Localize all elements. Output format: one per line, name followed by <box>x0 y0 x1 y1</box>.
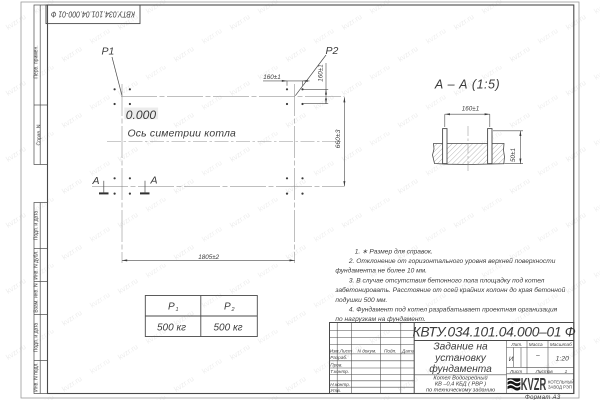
svg-text:1805±2: 1805±2 <box>198 254 219 261</box>
svg-text:P: P <box>168 302 175 313</box>
svg-text:1. ∗ Размер для справок.: 1. ∗ Размер для справок. <box>355 247 433 255</box>
svg-text:P1: P1 <box>102 46 115 58</box>
svg-text:фундамента не более 10 мм.: фундамента не более 10 мм. <box>335 267 427 275</box>
svg-text:4. Фундамент под котел разраб: 4. Фундамент под котел разрабатывает про… <box>349 306 558 314</box>
svg-text:по техническому заданию: по техническому заданию <box>426 387 496 393</box>
svg-text:И: И <box>509 356 514 363</box>
svg-text:Лист: Лист <box>509 369 522 374</box>
svg-text:Т.контр.: Т.контр. <box>330 369 349 374</box>
svg-text:Пров.: Пров. <box>330 362 342 367</box>
svg-text:160±1: 160±1 <box>263 74 280 81</box>
svg-text:Дата: Дата <box>401 348 415 353</box>
svg-text:Задание на: Задание на <box>433 341 488 352</box>
svg-text:фундамента: фундамента <box>429 363 492 375</box>
svg-text:2: 2 <box>231 307 235 313</box>
svg-text:50±1: 50±1 <box>510 148 517 162</box>
svg-text:160±1: 160±1 <box>317 64 324 81</box>
svg-text:Справ. N: Справ. N <box>37 124 43 145</box>
svg-text:Инв. N подл.: Инв. N подл. <box>34 362 40 391</box>
svg-text:КВТУ.034.101.04.000–01 Ф: КВТУ.034.101.04.000–01 Ф <box>413 324 576 339</box>
svg-text:Инв. N дубл.: Инв. N дубл. <box>34 250 40 279</box>
svg-text:Утв.: Утв. <box>330 388 341 393</box>
svg-text:Взам. инв. N: Взам. инв. N <box>34 283 40 313</box>
svg-text:забетонировать. Расстояние от: забетонировать. Расстояние от осей крайн… <box>334 286 565 294</box>
svg-text:подушки 500 мм.: подушки 500 мм. <box>335 296 387 304</box>
svg-text:Масса: Масса <box>529 342 543 347</box>
svg-text:A: A <box>92 175 100 187</box>
svg-text:Формат А3: Формат А3 <box>525 395 561 400</box>
svg-text:A: A <box>150 175 158 187</box>
svg-text:0.000: 0.000 <box>126 108 157 122</box>
svg-text:Перв. примен.: Перв. примен. <box>34 45 40 78</box>
svg-text:Подп. и дата: Подп. и дата <box>34 323 40 353</box>
svg-text:KVZR: KVZR <box>521 374 547 394</box>
svg-text:Листов: Листов <box>535 369 554 374</box>
svg-text:Изм.Лист: Изм.Лист <box>330 348 352 353</box>
svg-text:160±1: 160±1 <box>462 106 479 113</box>
svg-text:КОТЕЛЬНЫЙ: КОТЕЛЬНЫЙ <box>548 379 574 384</box>
svg-text:А – А (1:5): А – А (1:5) <box>434 78 500 92</box>
svg-text:Масштаб: Масштаб <box>550 342 572 347</box>
svg-text:N докум.: N докум. <box>358 348 377 353</box>
svg-text:Н.контр.: Н.контр. <box>330 382 350 387</box>
svg-text:1: 1 <box>176 307 179 313</box>
svg-text:ЗАВОД РЭП: ЗАВОД РЭП <box>548 385 572 390</box>
svg-text:Подп.: Подп. <box>384 348 396 353</box>
svg-text:–: – <box>535 353 540 360</box>
svg-text:установку: установку <box>434 353 487 364</box>
svg-text:2. Отклонение от горизонтальн: 2. Отклонение от горизонтального уровня … <box>348 257 556 265</box>
svg-text:Разраб.: Разраб. <box>330 355 347 360</box>
svg-text:1:20: 1:20 <box>556 356 569 363</box>
svg-text:Лит.: Лит. <box>510 342 522 347</box>
svg-text:P2: P2 <box>326 45 339 57</box>
svg-text:1: 1 <box>565 369 568 374</box>
svg-text:3. В случае отсутствия бетонн: 3. В случае отсутствия бетонного пола пл… <box>349 276 545 284</box>
svg-text:500 кг: 500 кг <box>214 323 243 334</box>
svg-text:500 кг: 500 кг <box>157 323 186 334</box>
svg-text:Подп. и дата: Подп. и дата <box>34 211 40 241</box>
svg-text:КВТУ.034.101.04.000-01 Ф: КВТУ.034.101.04.000-01 Ф <box>51 9 135 18</box>
svg-text:660±3: 660±3 <box>335 129 342 148</box>
svg-text:Ось симетрии котла: Ось симетрии котла <box>128 129 237 140</box>
svg-text:P: P <box>224 302 231 313</box>
